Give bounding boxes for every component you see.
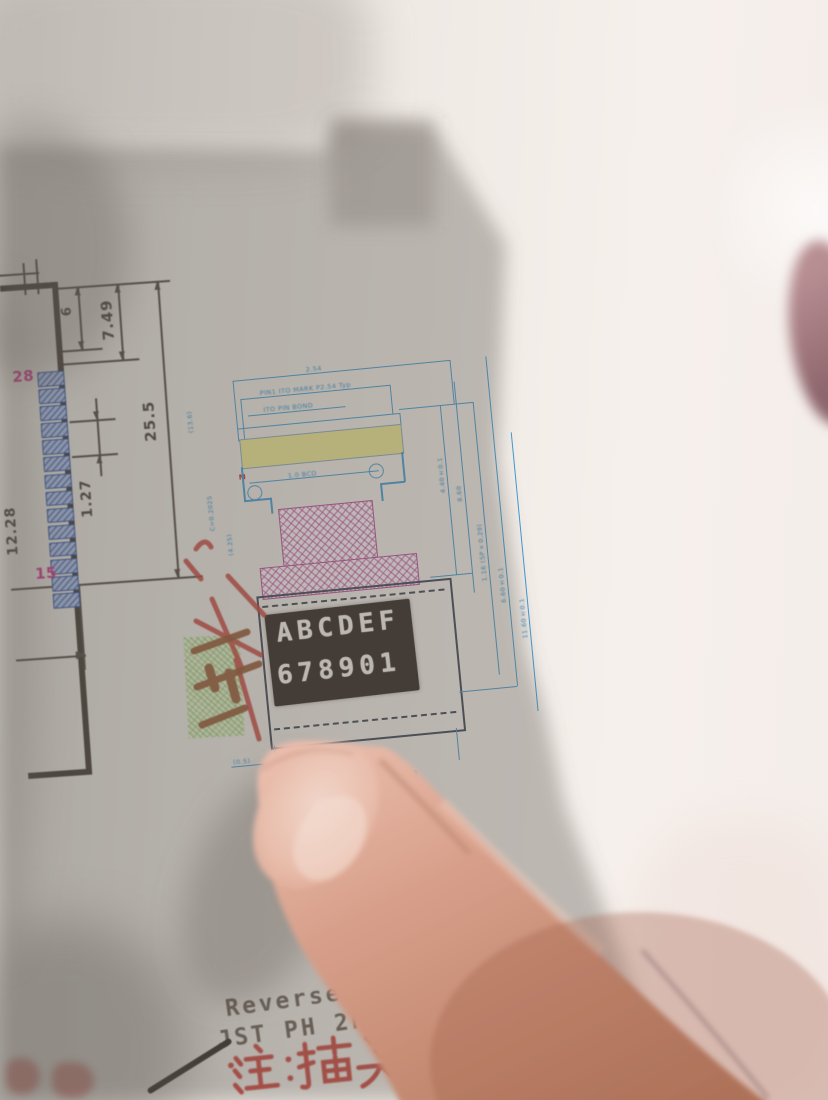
dim-text: C=0.2025 (205, 495, 216, 532)
arrowhead-icon (74, 286, 81, 295)
arrowhead-icon (119, 351, 126, 360)
photo-of-datasheet: 6 7.49 25.5 1.27 12.28 (0, 0, 828, 1100)
dim-text: (0.5) (233, 757, 251, 767)
body-outline (401, 452, 405, 482)
arrowhead-icon (174, 569, 181, 578)
lcd-text-line1: ABCDEF (275, 605, 402, 649)
body-outline (380, 483, 383, 501)
lcd-module-drawing: 2.54 PIN1 ITO MARK P2.54 Typ ITO PIN BON… (179, 337, 581, 829)
dim-line (157, 281, 179, 578)
thumb-at-right-edge (779, 236, 828, 430)
faint-red-stamp (52, 1062, 94, 1098)
green-highlight-patch (183, 635, 244, 739)
dim-text: (4.25) (225, 533, 235, 556)
body-outline (270, 498, 273, 514)
ext-line (390, 385, 394, 415)
ext-line (399, 402, 473, 410)
arrowhead-icon (93, 411, 100, 419)
connector-pad (41, 422, 69, 438)
finger-edge-crease (642, 950, 768, 1098)
dim-label-pitch: 1.27 (78, 479, 97, 519)
connector-pad (39, 405, 67, 421)
component-outline-top (0, 282, 58, 292)
lcd-text-line2: 678901 (276, 647, 403, 691)
dim-label-width: 12.28 (2, 506, 21, 556)
faint-red-stamp (6, 1058, 40, 1094)
dim-text: (13.6) (185, 411, 195, 434)
connector-pad (45, 490, 73, 506)
dim-line (117, 283, 124, 360)
pin-number-top: 28 (12, 367, 35, 386)
connector-pad (37, 371, 65, 387)
connector-pad (42, 439, 70, 455)
dim-line (233, 360, 450, 382)
top-shadow-band (0, 0, 370, 160)
backlight-hotspot (700, 90, 828, 330)
connector-pad (38, 388, 66, 404)
ext-line (274, 745, 279, 783)
arrowhead-icon (154, 281, 161, 290)
body-outline (380, 481, 405, 485)
lcd-screen: ABCDEF 678901 (264, 599, 419, 707)
ext-line (64, 358, 140, 365)
connector-pad (53, 592, 81, 608)
dim-text: PIN1 ITO MARK P2.54 Typ (259, 381, 351, 398)
pin-number-bottom: 15 (34, 564, 57, 583)
connector-pad (43, 456, 71, 472)
connector-pad (44, 473, 72, 489)
finger-lower-shading (430, 912, 828, 1100)
warm-tint (630, 820, 828, 1100)
finger-highlight-streak (442, 802, 602, 952)
arrowhead-icon (78, 341, 85, 350)
ext-line (456, 728, 460, 760)
body-outline (244, 498, 271, 502)
frame-line (0, 272, 39, 277)
arrowhead-icon (76, 651, 87, 660)
arrowhead-icon (96, 455, 103, 463)
ext-line (459, 686, 517, 693)
component-outline-bottom (28, 769, 88, 779)
dim-line (485, 356, 518, 686)
frame-tick (22, 263, 26, 295)
dim-label-pad-span: 6 (60, 306, 76, 317)
mounting-hole (368, 463, 384, 479)
connector-pad (48, 524, 76, 540)
dim-label-body: 25.5 (139, 400, 160, 442)
arrowhead-icon (114, 283, 121, 292)
dim-line (95, 398, 102, 476)
dim-text: 24.10 (397, 769, 418, 779)
dim-text: 8.60 (455, 485, 465, 502)
dim-text: 2.54 (305, 364, 322, 374)
dim-label-header: 7.49 (97, 299, 118, 341)
connector-pad (49, 541, 77, 557)
ext-line (72, 453, 118, 458)
connector-pad (47, 507, 75, 523)
shadow-dark-band (330, 118, 434, 226)
dim-text: 1.0 BCD (287, 469, 317, 480)
